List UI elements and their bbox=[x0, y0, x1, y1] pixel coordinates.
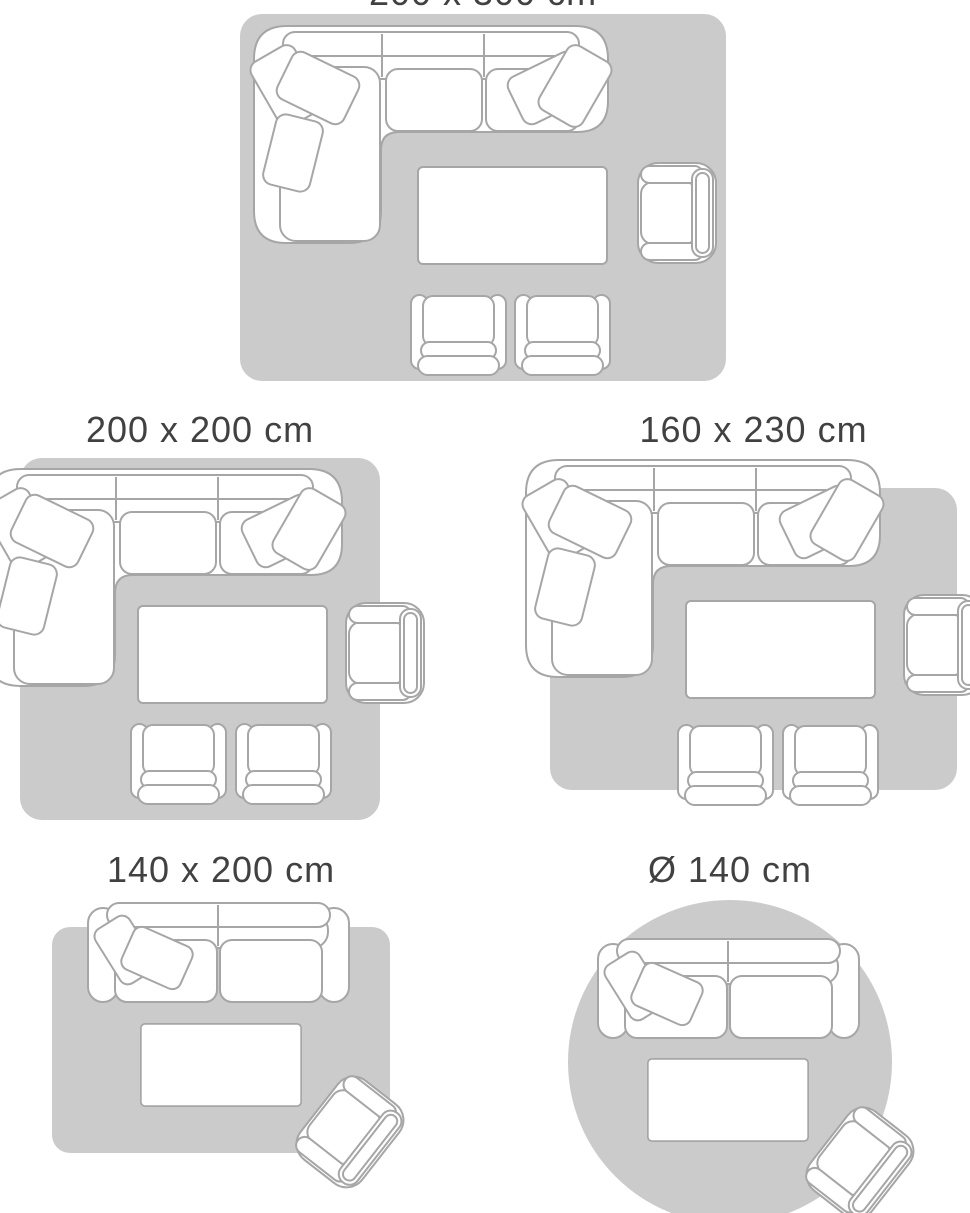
sectional-sofa-icon bbox=[525, 459, 881, 678]
armchair-icon bbox=[345, 602, 425, 704]
footstool-chair-icon bbox=[782, 723, 879, 806]
sectional-sofa-icon bbox=[0, 468, 343, 687]
armchair-rotated-icon bbox=[797, 1098, 923, 1213]
rug-circle bbox=[568, 900, 892, 1213]
footstool-chair-icon bbox=[130, 722, 227, 805]
coffee-table-icon bbox=[685, 600, 876, 699]
size-diagram-200x300: 200 x 300 cm bbox=[0, 0, 970, 1213]
coffee-table-icon bbox=[417, 166, 608, 265]
rug-rectangle bbox=[550, 488, 957, 790]
size-diagram-160x230: 160 x 230 cm bbox=[0, 0, 970, 1213]
coffee-table-icon bbox=[140, 1023, 302, 1107]
loveseat-sofa-icon bbox=[597, 938, 860, 1044]
rug-rectangle bbox=[240, 14, 726, 381]
armchair-icon bbox=[637, 162, 717, 264]
size-label-140x200: 140 x 200 cm bbox=[52, 850, 390, 890]
loveseat-sofa-icon bbox=[87, 902, 350, 1008]
footstool-chair-icon bbox=[677, 723, 774, 806]
size-diagram-d140: Ø 140 cm bbox=[0, 0, 970, 1213]
size-label-d140: Ø 140 cm bbox=[568, 850, 892, 890]
footstool-chair-icon bbox=[235, 722, 332, 805]
coffee-table-icon bbox=[647, 1058, 809, 1142]
rug-square bbox=[20, 458, 380, 820]
size-label-160x230: 160 x 230 cm bbox=[550, 410, 957, 450]
rug-size-guide: 200 x 300 cm 200 x 200 cm 160 x 230 cm 1… bbox=[0, 0, 970, 1213]
footstool-chair-icon bbox=[514, 293, 611, 376]
armchair-rotated-icon bbox=[287, 1067, 413, 1197]
rug-rectangle bbox=[52, 927, 390, 1153]
size-diagram-200x200: 200 x 200 cm bbox=[0, 0, 970, 1213]
size-label-200x300: 200 x 300 cm bbox=[240, 0, 726, 13]
sectional-sofa-icon bbox=[253, 25, 609, 244]
armchair-icon bbox=[903, 594, 970, 696]
coffee-table-icon bbox=[137, 605, 328, 704]
footstool-chair-icon bbox=[410, 293, 507, 376]
size-label-200x200: 200 x 200 cm bbox=[20, 410, 380, 450]
size-diagram-140x200: 140 x 200 cm bbox=[0, 0, 970, 1213]
